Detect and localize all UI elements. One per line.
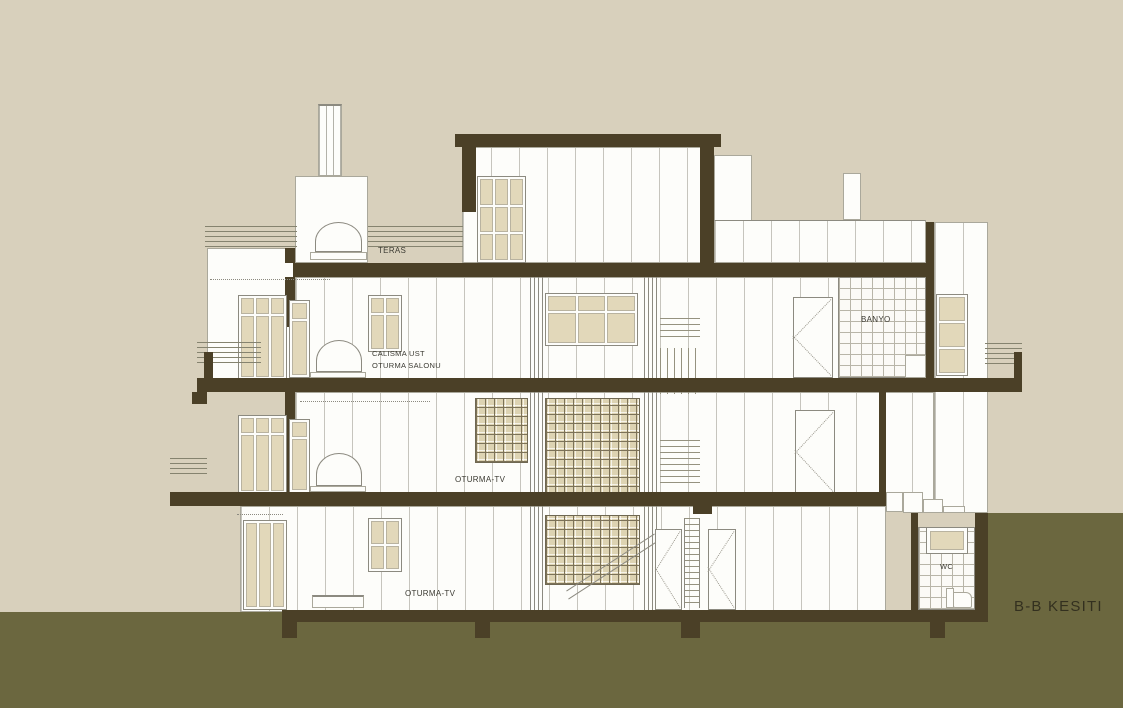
penthouse-window: [477, 176, 526, 263]
window-pane: [480, 207, 493, 233]
window-pane: [241, 435, 254, 491]
window-pane: [939, 297, 965, 321]
glass-block-wall-main: [545, 398, 640, 497]
window-pane: [241, 418, 254, 433]
door-swing-line: [792, 299, 831, 339]
foundation-pier: [681, 622, 700, 638]
exterior-landing: [886, 492, 903, 512]
atrium-mullions-left: [530, 277, 544, 610]
atrium-pier-ground: [693, 506, 712, 514]
hidden-edge-line: [210, 279, 330, 280]
door-first-floor: [795, 410, 835, 494]
chimney-right: [843, 173, 861, 220]
second-floor-slab: [197, 378, 1022, 392]
penthouse-roof-slab: [455, 134, 721, 147]
door-swing-line: [794, 412, 833, 454]
window-pane: [495, 234, 508, 260]
bay-window-second: [238, 295, 287, 380]
window-pane: [292, 321, 307, 375]
window-pane: [548, 313, 576, 343]
terrace-edge-stub: [285, 248, 295, 263]
interior-window-second: [368, 295, 402, 352]
door-panel: [259, 523, 270, 607]
window-pane: [480, 234, 493, 260]
chimney-left: [318, 104, 342, 176]
bay-window-first: [238, 415, 287, 494]
penthouse-wall-left: [462, 147, 476, 212]
section-title: B-B KESITI: [1014, 598, 1103, 615]
roof-terrace-slab: [293, 263, 934, 277]
window-pane: [292, 422, 307, 437]
terrace-railing-left: [205, 226, 297, 247]
window-pane: [371, 315, 384, 349]
window-pane: [930, 531, 964, 550]
window-pane: [256, 435, 269, 491]
foundation-pier: [475, 622, 490, 638]
label-wc: WC: [940, 561, 953, 573]
window-pane: [292, 303, 307, 319]
window-pane: [371, 546, 384, 569]
terrain-left: [0, 612, 1123, 708]
ladder-ground: [684, 518, 700, 608]
window-pane: [607, 296, 635, 311]
terrace-railing-right: [368, 226, 463, 247]
stair-mid-flight: [660, 440, 700, 487]
window-pane: [495, 179, 508, 205]
window-pane: [548, 296, 576, 311]
atrium-clerestory-window: [545, 293, 638, 346]
window-pane: [271, 298, 284, 314]
balcony-pier-second-left: [204, 352, 213, 378]
window-pane: [386, 298, 399, 313]
window-pane: [510, 207, 523, 233]
section-drawing-sheet: TERAS CALISMA UST OTURMA SALONU BANYO OT…: [0, 0, 1123, 708]
door-panel: [273, 523, 284, 607]
hidden-edge-line: [300, 401, 430, 402]
wc-window: [926, 527, 968, 554]
wc-wall-right: [975, 513, 988, 612]
terrace-rooflight-plinth: [310, 252, 367, 260]
stair-window-stack: [936, 294, 968, 376]
bay-door-ground: [243, 520, 287, 610]
door-panel: [246, 523, 257, 607]
window-pane: [271, 435, 284, 491]
door-second-floor: [793, 297, 833, 378]
door-swing-line: [655, 531, 681, 571]
door-swing-line: [707, 567, 734, 608]
window-pane: [939, 349, 965, 373]
label-calisma-ust: CALISMA UST: [372, 348, 425, 360]
balcony-railing-first-left: [170, 458, 207, 478]
wall-first-right: [879, 392, 886, 506]
window-pane: [292, 439, 307, 490]
window-pane: [386, 521, 399, 544]
window-pane: [271, 418, 284, 433]
door-ground-right: [708, 529, 736, 610]
bench-ground: [312, 595, 364, 608]
hidden-edge-line: [237, 514, 283, 515]
door-ground-left: [655, 529, 682, 610]
foundation-pier: [282, 622, 297, 638]
right-wall-upper: [926, 222, 934, 392]
exterior-step-1: [903, 492, 923, 513]
door-swing-line: [792, 336, 831, 376]
right-wing-parapet: [714, 220, 926, 263]
window-pane: [256, 298, 269, 314]
window-pane: [371, 298, 384, 313]
label-banyo: BANYO: [861, 314, 891, 326]
bay-return-window-second: [289, 300, 310, 378]
window-pane: [386, 546, 399, 569]
window-pane: [241, 298, 254, 314]
label-oturma-tv-ground: OTURMA-TV: [405, 588, 455, 600]
window-pane: [510, 179, 523, 205]
window-pane: [607, 313, 635, 343]
ground-slab: [282, 610, 988, 622]
interior-window-ground: [368, 518, 402, 572]
door-swing-line: [794, 450, 833, 492]
bay-return-window-first: [289, 419, 310, 493]
exterior-step-2: [923, 499, 943, 513]
stair-upper-flight: [660, 318, 700, 342]
balcony-pier-first-left: [192, 392, 207, 404]
wc-wall-left: [911, 513, 918, 612]
label-teras: TERAS: [378, 245, 406, 257]
window-pane: [480, 179, 493, 205]
window-pane: [939, 323, 965, 347]
window-pane: [256, 418, 269, 433]
door-swing-line: [655, 567, 681, 607]
window-pane: [271, 316, 284, 377]
window-pane: [371, 521, 384, 544]
window-pane: [578, 296, 606, 311]
window-pane: [578, 313, 606, 343]
glass-block-wall-left: [475, 398, 528, 463]
label-oturma-salonu: OTURMA SALONU: [372, 360, 441, 372]
label-oturma-tv-first: OTURMA-TV: [455, 474, 505, 486]
exterior-step-3: [943, 506, 965, 513]
door-swing-line: [707, 531, 734, 572]
balcony-pier-second-right: [1014, 352, 1022, 378]
window-pane: [386, 315, 399, 349]
window-pane: [510, 234, 523, 260]
bathroom-step: [905, 355, 926, 378]
window-pane: [495, 207, 508, 233]
foundation-pier: [930, 622, 945, 638]
wc-toilet-bowl: [953, 592, 972, 608]
penthouse-wall-right: [700, 147, 714, 263]
first-floor-slab: [170, 492, 886, 506]
